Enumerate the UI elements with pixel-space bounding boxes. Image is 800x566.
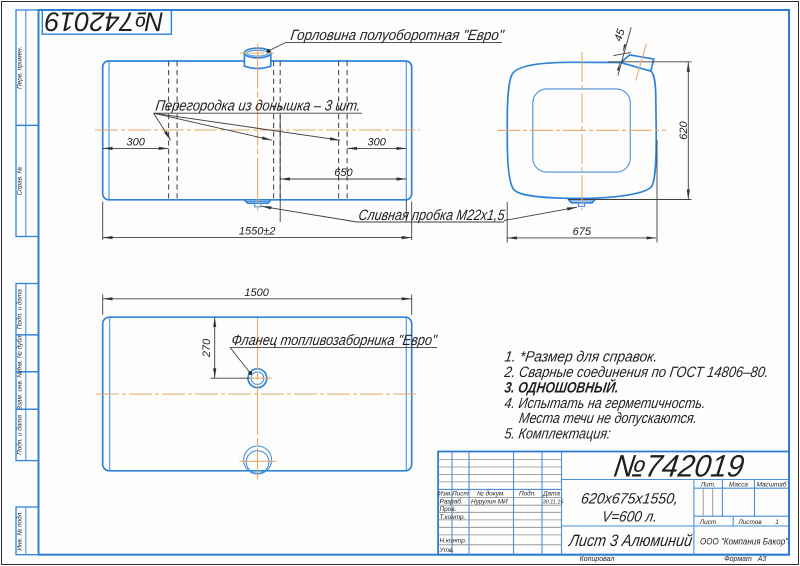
svg-text:Перегородка из донышка – 3 шт.: Перегородка из донышка – 3 шт.: [154, 98, 361, 115]
svg-text:300: 300: [368, 137, 387, 149]
svg-text:Т.контр.: Т.контр.: [440, 514, 466, 521]
svg-text:1550±2: 1550±2: [239, 226, 276, 238]
svg-text:675: 675: [573, 226, 592, 238]
svg-text:620х675х1550,: 620х675х1550,: [580, 491, 679, 508]
svg-text:ООО "Компания Бакор": ООО "Компания Бакор": [700, 537, 789, 548]
svg-text:Подп. и дата: Подп. и дата: [16, 414, 24, 454]
svg-text:3. ОДНОШОВНЫЙ.: 3. ОДНОШОВНЫЙ.: [503, 379, 620, 397]
svg-text:Изм.: Изм.: [438, 490, 452, 497]
svg-text:Масса: Масса: [729, 482, 748, 489]
svg-text:Н.контр.: Н.контр.: [440, 538, 467, 545]
svg-text:Сливная пробка М22х1,5: Сливная пробка М22х1,5: [357, 207, 506, 224]
svg-text:№742019: №742019: [612, 449, 747, 484]
svg-text:Лист 3 Алюминий: Лист 3 Алюминий: [567, 531, 694, 550]
svg-text:30.11.15: 30.11.15: [543, 500, 565, 506]
svg-text:Подп.: Подп.: [519, 489, 536, 497]
svg-text:1500: 1500: [244, 287, 269, 299]
svg-text:Горловина полуоборотная "Евро": Горловина полуоборотная "Евро": [289, 27, 505, 44]
svg-text:Подп. и дата: Подп. и дата: [16, 289, 24, 329]
svg-text:Формат: Формат: [724, 556, 752, 563]
svg-text:1: 1: [775, 519, 779, 526]
svg-text:270: 270: [201, 338, 213, 358]
svg-text:Лит.: Лит.: [700, 482, 716, 489]
svg-text:Лист: Лист: [451, 490, 469, 497]
svg-text:Справ. №: Справ. №: [17, 166, 24, 195]
svg-text:Копировал: Копировал: [580, 556, 615, 563]
svg-text:А3: А3: [757, 556, 767, 563]
svg-text:Места течи не допускаются.: Места течи не допускаются.: [518, 410, 698, 427]
svg-text:620: 620: [678, 120, 690, 139]
svg-text:Дата: Дата: [542, 490, 560, 497]
svg-text:V=600 л.: V=600 л.: [601, 509, 658, 526]
svg-text:1. *Размер для справок.: 1. *Размер для справок.: [503, 349, 658, 366]
svg-text:5. Комплектация:: 5. Комплектация:: [503, 426, 611, 443]
svg-text:Лист: Лист: [699, 519, 717, 526]
svg-text:Масштаб: Масштаб: [757, 481, 787, 489]
svg-text:Разраб.: Разраб.: [440, 498, 463, 506]
svg-text:300: 300: [127, 137, 146, 149]
svg-text:Утв.: Утв.: [439, 547, 455, 554]
svg-text:Взам. инв. №: Взам. инв. №: [17, 371, 24, 411]
svg-text:Пров.: Пров.: [440, 506, 457, 513]
svg-text:Нурулин МИ: Нурулин МИ: [471, 499, 508, 506]
svg-text:45: 45: [612, 27, 627, 43]
svg-text:Перв. примен.: Перв. примен.: [17, 46, 24, 88]
svg-text:Листов: Листов: [737, 519, 762, 526]
svg-text:№742019: №742019: [45, 7, 164, 37]
svg-text:Инв. № дубл.: Инв. № дубл.: [16, 334, 24, 373]
svg-text:Инв. № подл.: Инв. № подл.: [16, 511, 24, 551]
svg-text:650: 650: [334, 167, 353, 179]
svg-text:Фланец топливозаборника "Евро": Фланец топливозаборника "Евро": [230, 332, 438, 349]
svg-text:№ докум.: № докум.: [477, 489, 505, 497]
svg-text:2. Сварные соединения по ГОСТ: 2. Сварные соединения по ГОСТ 14806–80.: [503, 364, 770, 381]
